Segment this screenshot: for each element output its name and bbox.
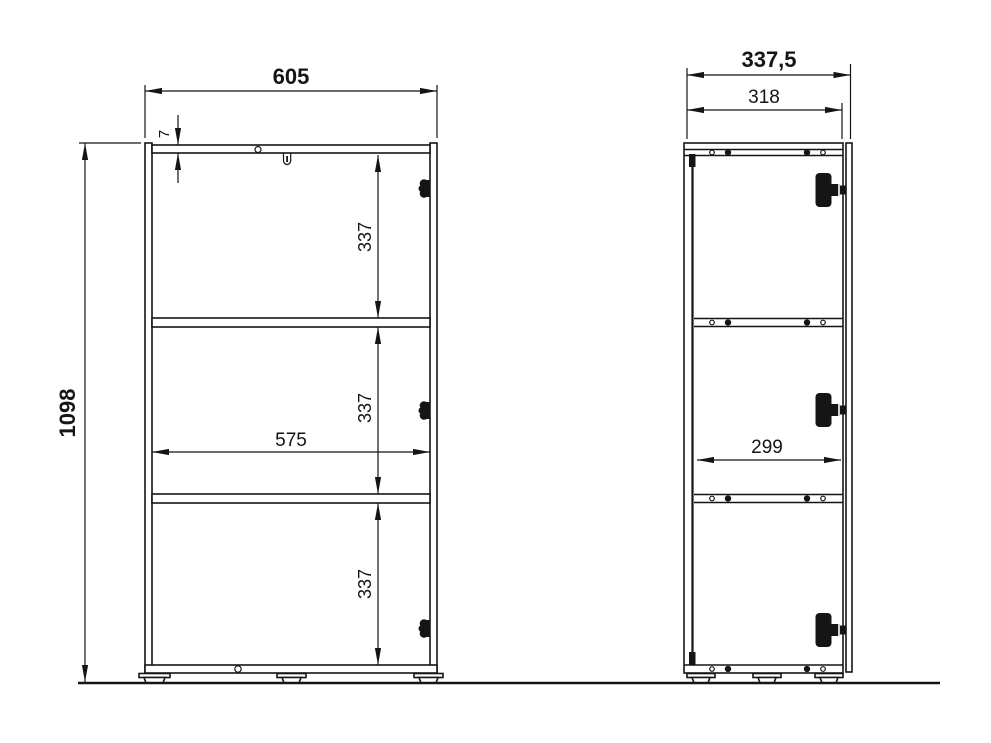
- side-bottom-dowel-left: [710, 667, 715, 672]
- front-foot-left: [139, 674, 170, 683]
- side-foot-back: [687, 674, 715, 683]
- dim-text-carcass-depth: 318: [748, 87, 780, 108]
- side-bottom-screw-right: [804, 666, 810, 672]
- front-hinge-bottom: [419, 619, 431, 638]
- side-top-screw-right: [804, 149, 810, 155]
- side-door-edge: [846, 143, 852, 672]
- dim-text-compartment-2: 337: [355, 393, 375, 423]
- dim-text-inner-width: 575: [275, 430, 307, 451]
- front-shelf-1: [152, 318, 430, 327]
- side-bottom-screw-left: [725, 666, 731, 672]
- dim-text-overall-depth: 337,5: [741, 47, 796, 72]
- front-top-panel: [152, 145, 430, 153]
- side-shelf-2-screw-right: [804, 495, 810, 501]
- side-shelf-2-screw-left: [725, 495, 731, 501]
- side-bottom-dowel-right: [821, 667, 826, 672]
- side-back-panel-bottom-clip: [689, 652, 696, 665]
- dim-text-overall-height: 1098: [55, 389, 80, 438]
- side-top-dowel-right: [821, 150, 826, 155]
- dim-compartment-1: 337: [355, 155, 378, 318]
- dim-overall-width: 605: [145, 64, 437, 138]
- dim-text-compartment-1: 337: [355, 222, 375, 252]
- side-top-dowel-left: [710, 150, 715, 155]
- side-foot-front: [815, 674, 843, 683]
- cam-lock-symbol: [284, 154, 291, 165]
- side-view: 337,5 318 299: [684, 47, 852, 683]
- drawing-canvas: 605 7 1098 575 337 337 3: [0, 0, 991, 743]
- front-hinge-middle: [419, 401, 431, 420]
- front-foot-right: [414, 674, 443, 683]
- front-view: 605 7 1098 575 337 337 3: [55, 64, 443, 683]
- side-shelf-1-dowel-left: [710, 320, 715, 325]
- side-back-panel-top-clip: [689, 154, 696, 167]
- side-shelf-2-dowel-right: [821, 496, 826, 501]
- front-shelf-2: [152, 494, 430, 503]
- front-foot-center: [277, 674, 306, 683]
- side-shelf-1-screw-right: [804, 319, 810, 325]
- front-top-panel-hole: [255, 147, 261, 153]
- dim-overall-height: 1098: [55, 143, 141, 682]
- front-bottom-panel: [145, 665, 437, 673]
- front-left-side-panel: [145, 143, 152, 673]
- dim-text-inner-depth: 299: [751, 437, 783, 458]
- front-hinge-top: [419, 179, 431, 198]
- dim-text-overall-width: 605: [273, 64, 310, 89]
- front-bottom-panel-hole: [235, 666, 241, 672]
- side-shelf-1-screw-left: [725, 319, 731, 325]
- dim-text-top-panel-thickness: 7: [156, 130, 173, 138]
- side-shelf-1-dowel-right: [821, 320, 826, 325]
- dim-compartment-2: 337: [355, 327, 378, 494]
- dim-text-compartment-3: 337: [355, 569, 375, 599]
- dim-compartment-3: 337: [355, 503, 378, 665]
- side-top-screw-left: [725, 149, 731, 155]
- side-foot-center: [753, 674, 781, 683]
- cabinet-technical-drawing: 605 7 1098 575 337 337 3: [0, 0, 991, 743]
- dim-inner-width: 575: [152, 430, 430, 452]
- dim-carcass-depth: 318: [687, 87, 842, 139]
- side-shelf-2-dowel-left: [710, 496, 715, 501]
- front-right-side-panel: [430, 143, 437, 673]
